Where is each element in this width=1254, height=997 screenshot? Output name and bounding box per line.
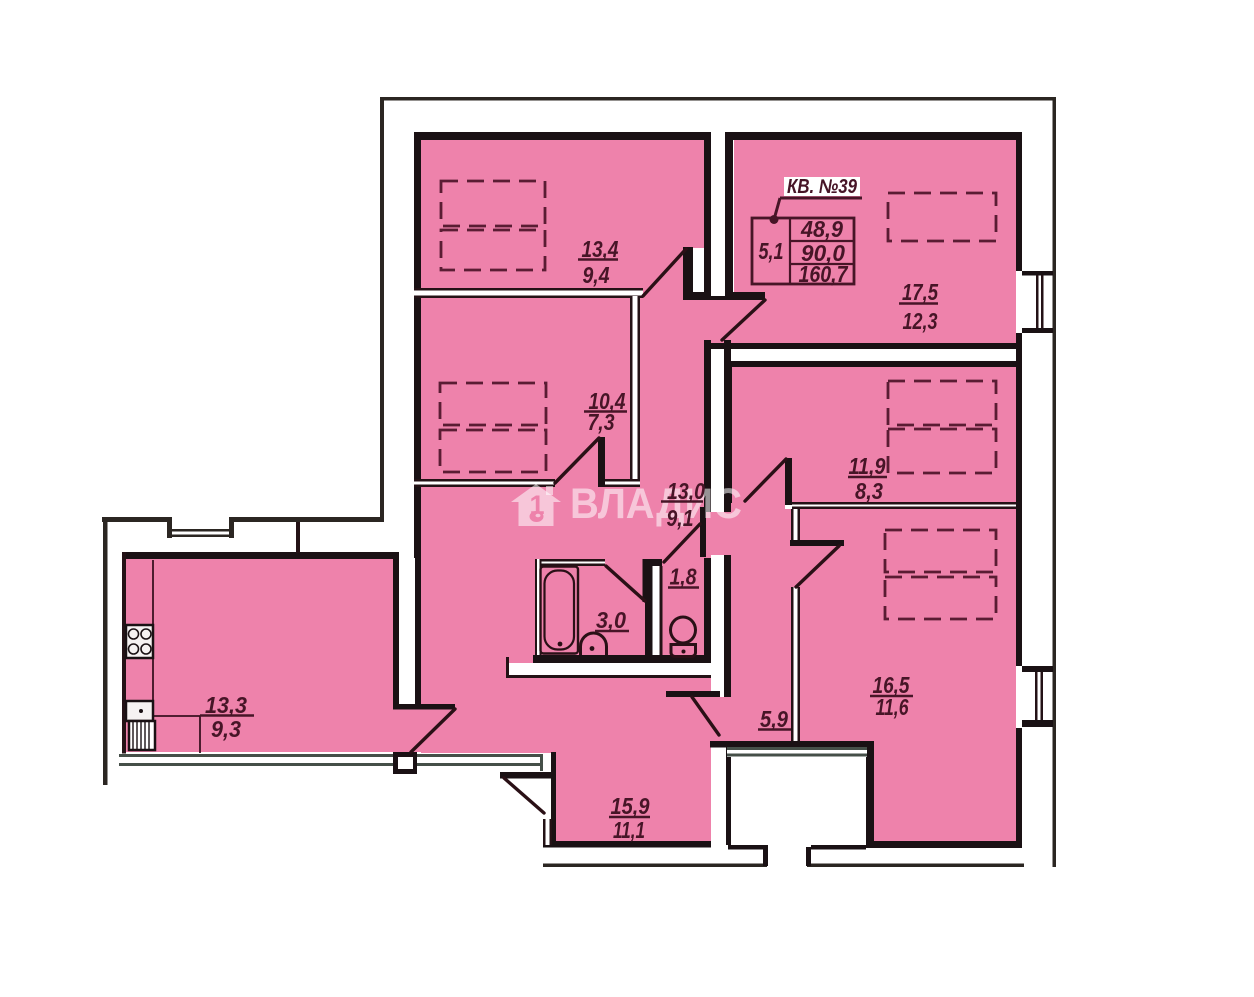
svg-text:5,9: 5,9 (760, 706, 788, 732)
svg-text:5,1: 5,1 (759, 238, 784, 264)
svg-text:9,3: 9,3 (211, 716, 241, 742)
svg-text:ВЛАДИС: ВЛАДИС (570, 480, 742, 528)
svg-text:9,4: 9,4 (583, 262, 610, 288)
svg-text:13,0: 13,0 (667, 478, 705, 504)
svg-text:12,3: 12,3 (903, 308, 938, 334)
svg-text:17,5: 17,5 (902, 279, 939, 305)
svg-text:48,9: 48,9 (800, 216, 843, 242)
svg-text:8,3: 8,3 (855, 478, 883, 504)
svg-text:7,3: 7,3 (588, 409, 615, 435)
svg-text:11,1: 11,1 (613, 817, 645, 843)
svg-text:15,9: 15,9 (611, 793, 650, 819)
svg-text:13,3: 13,3 (205, 692, 247, 718)
svg-text:1,8: 1,8 (670, 564, 697, 590)
svg-text:9,1: 9,1 (667, 505, 694, 531)
svg-text:3,0: 3,0 (596, 607, 626, 633)
svg-text:КВ. №39: КВ. №39 (787, 176, 858, 198)
svg-text:11,9: 11,9 (849, 453, 886, 479)
svg-text:160,7: 160,7 (799, 261, 849, 287)
svg-text:13,4: 13,4 (582, 236, 619, 262)
svg-text:11,6: 11,6 (876, 694, 909, 720)
